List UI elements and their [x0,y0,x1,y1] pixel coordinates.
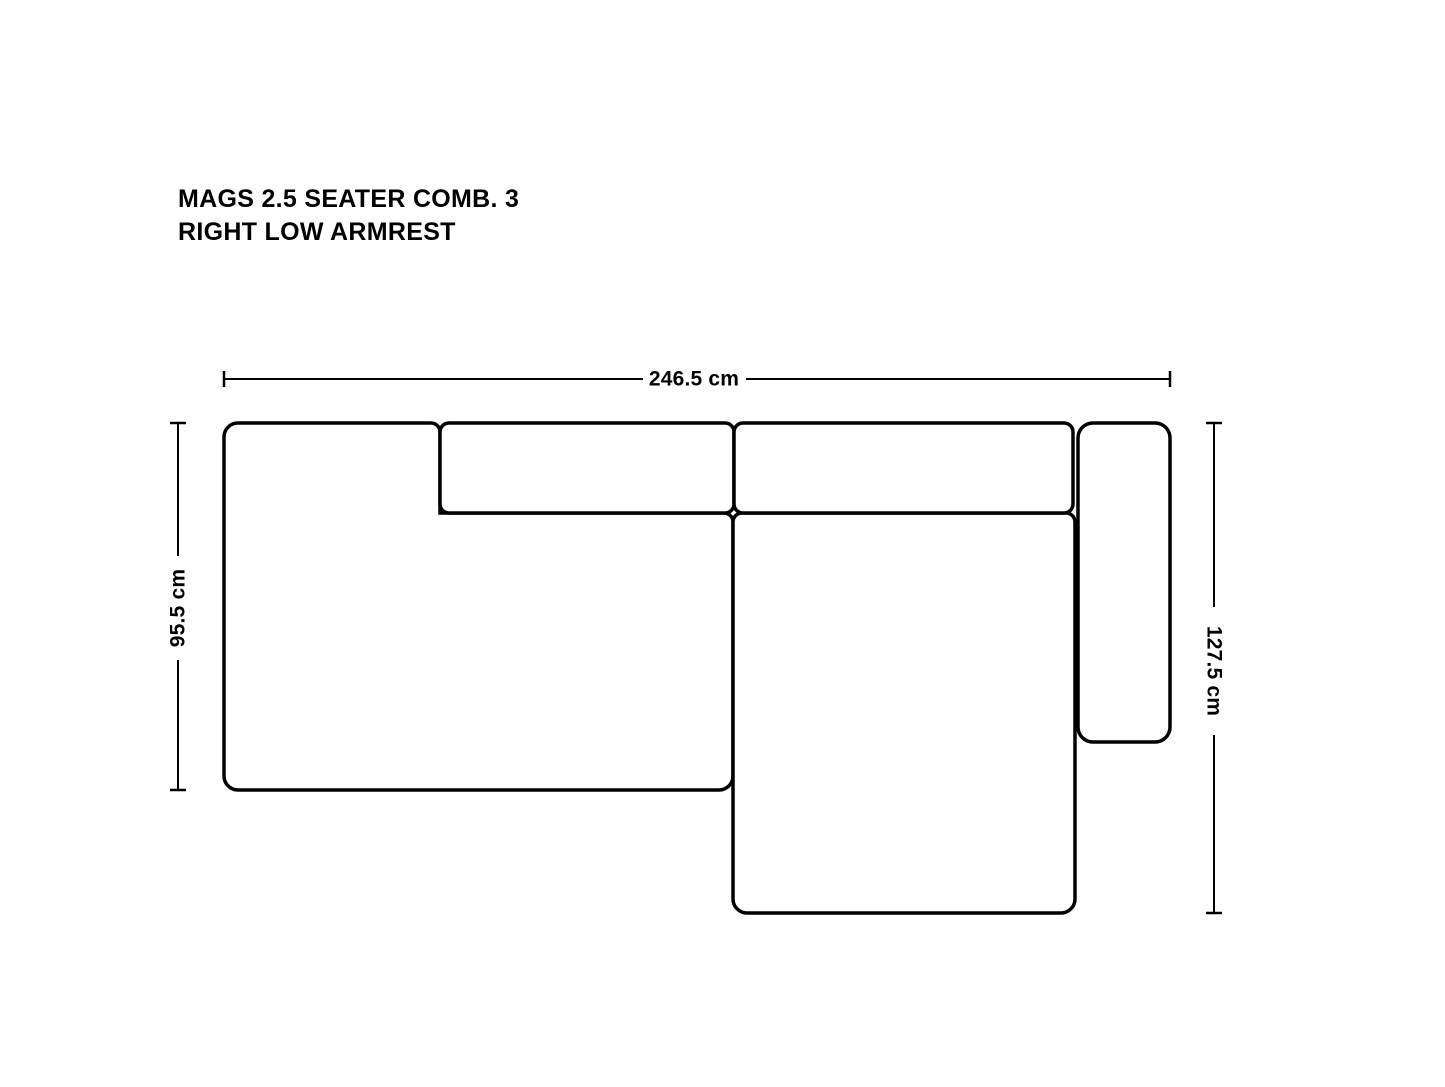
sofa-modules [224,423,1170,913]
dimension-chaise-depth: 127.5 cm [1203,423,1226,913]
sofa-top-view-drawing: 246.5 cm 95.5 cm 127.5 cm [0,0,1445,1087]
product-dimension-diagram: MAGS 2.5 SEATER COMB. 3 RIGHT LOW ARMRES… [0,0,1445,1087]
back-cushion-right [734,423,1073,513]
chaise-depth-label: 127.5 cm [1203,626,1226,716]
dimension-seat-depth: 95.5 cm [167,423,190,790]
seat-depth-label: 95.5 cm [167,569,190,647]
back-cushion-left [440,423,734,513]
overall-width-label: 246.5 cm [649,368,739,391]
dimension-overall-width: 246.5 cm [224,368,1170,391]
right-low-armrest [1078,423,1170,742]
chaise-longue-module [733,513,1075,913]
